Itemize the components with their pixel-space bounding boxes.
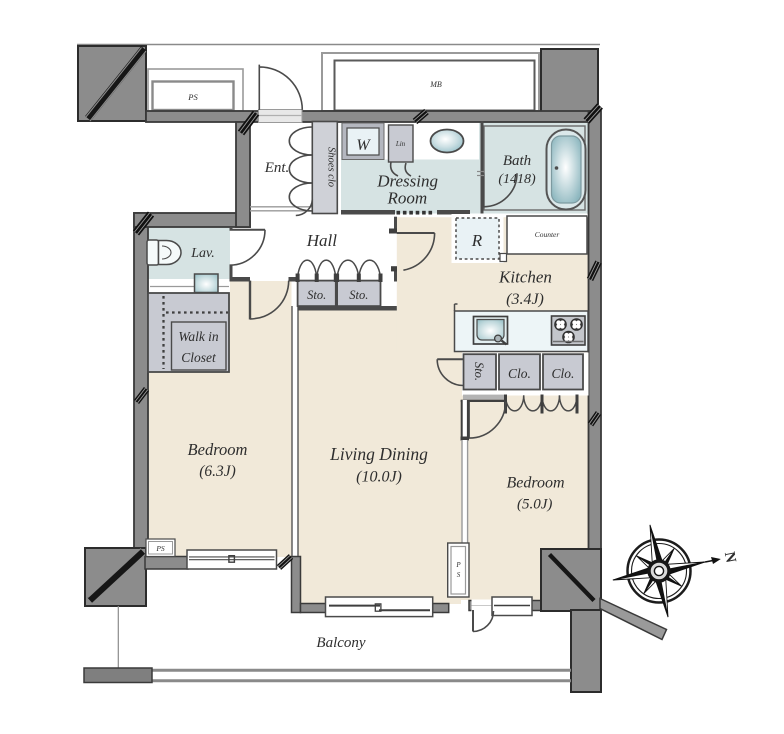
- svg-text:Kitchen: Kitchen: [498, 268, 552, 287]
- svg-text:Walk in: Walk in: [178, 329, 219, 344]
- svg-text:Balcony: Balcony: [316, 635, 365, 651]
- svg-text:Ent.: Ent.: [264, 160, 290, 176]
- svg-text:MB: MB: [429, 80, 442, 89]
- svg-text:Clo.: Clo.: [508, 366, 531, 381]
- svg-text:Hall: Hall: [306, 231, 338, 250]
- svg-text:S: S: [457, 571, 461, 579]
- svg-text:Lin: Lin: [395, 140, 406, 148]
- svg-text:P: P: [455, 561, 461, 569]
- svg-text:W: W: [356, 137, 371, 154]
- svg-text:Clo.: Clo.: [552, 366, 575, 381]
- svg-text:(10.0J): (10.0J): [356, 469, 402, 486]
- svg-text:Lav.: Lav.: [190, 246, 214, 261]
- svg-text:Sto.: Sto.: [472, 362, 486, 381]
- svg-text:Shoes clo: Shoes clo: [326, 147, 337, 187]
- svg-text:Counter: Counter: [535, 230, 560, 239]
- svg-text:Closet: Closet: [181, 350, 217, 365]
- svg-text:Bedroom: Bedroom: [188, 440, 248, 459]
- svg-text:PS: PS: [155, 544, 165, 553]
- svg-text:Bedroom: Bedroom: [506, 475, 564, 492]
- svg-text:(3.4J): (3.4J): [506, 291, 544, 308]
- svg-text:Bath: Bath: [503, 153, 531, 169]
- svg-text:(6.3J): (6.3J): [199, 463, 236, 480]
- svg-text:R: R: [471, 231, 483, 250]
- svg-text:Room: Room: [386, 189, 427, 208]
- svg-text:(5.0J): (5.0J): [517, 497, 552, 513]
- svg-text:Living Dining: Living Dining: [329, 444, 428, 464]
- svg-text:Sto.: Sto.: [307, 288, 326, 302]
- svg-text:PS: PS: [187, 92, 198, 102]
- svg-text:Sto.: Sto.: [349, 288, 368, 302]
- svg-text:N: N: [721, 550, 739, 564]
